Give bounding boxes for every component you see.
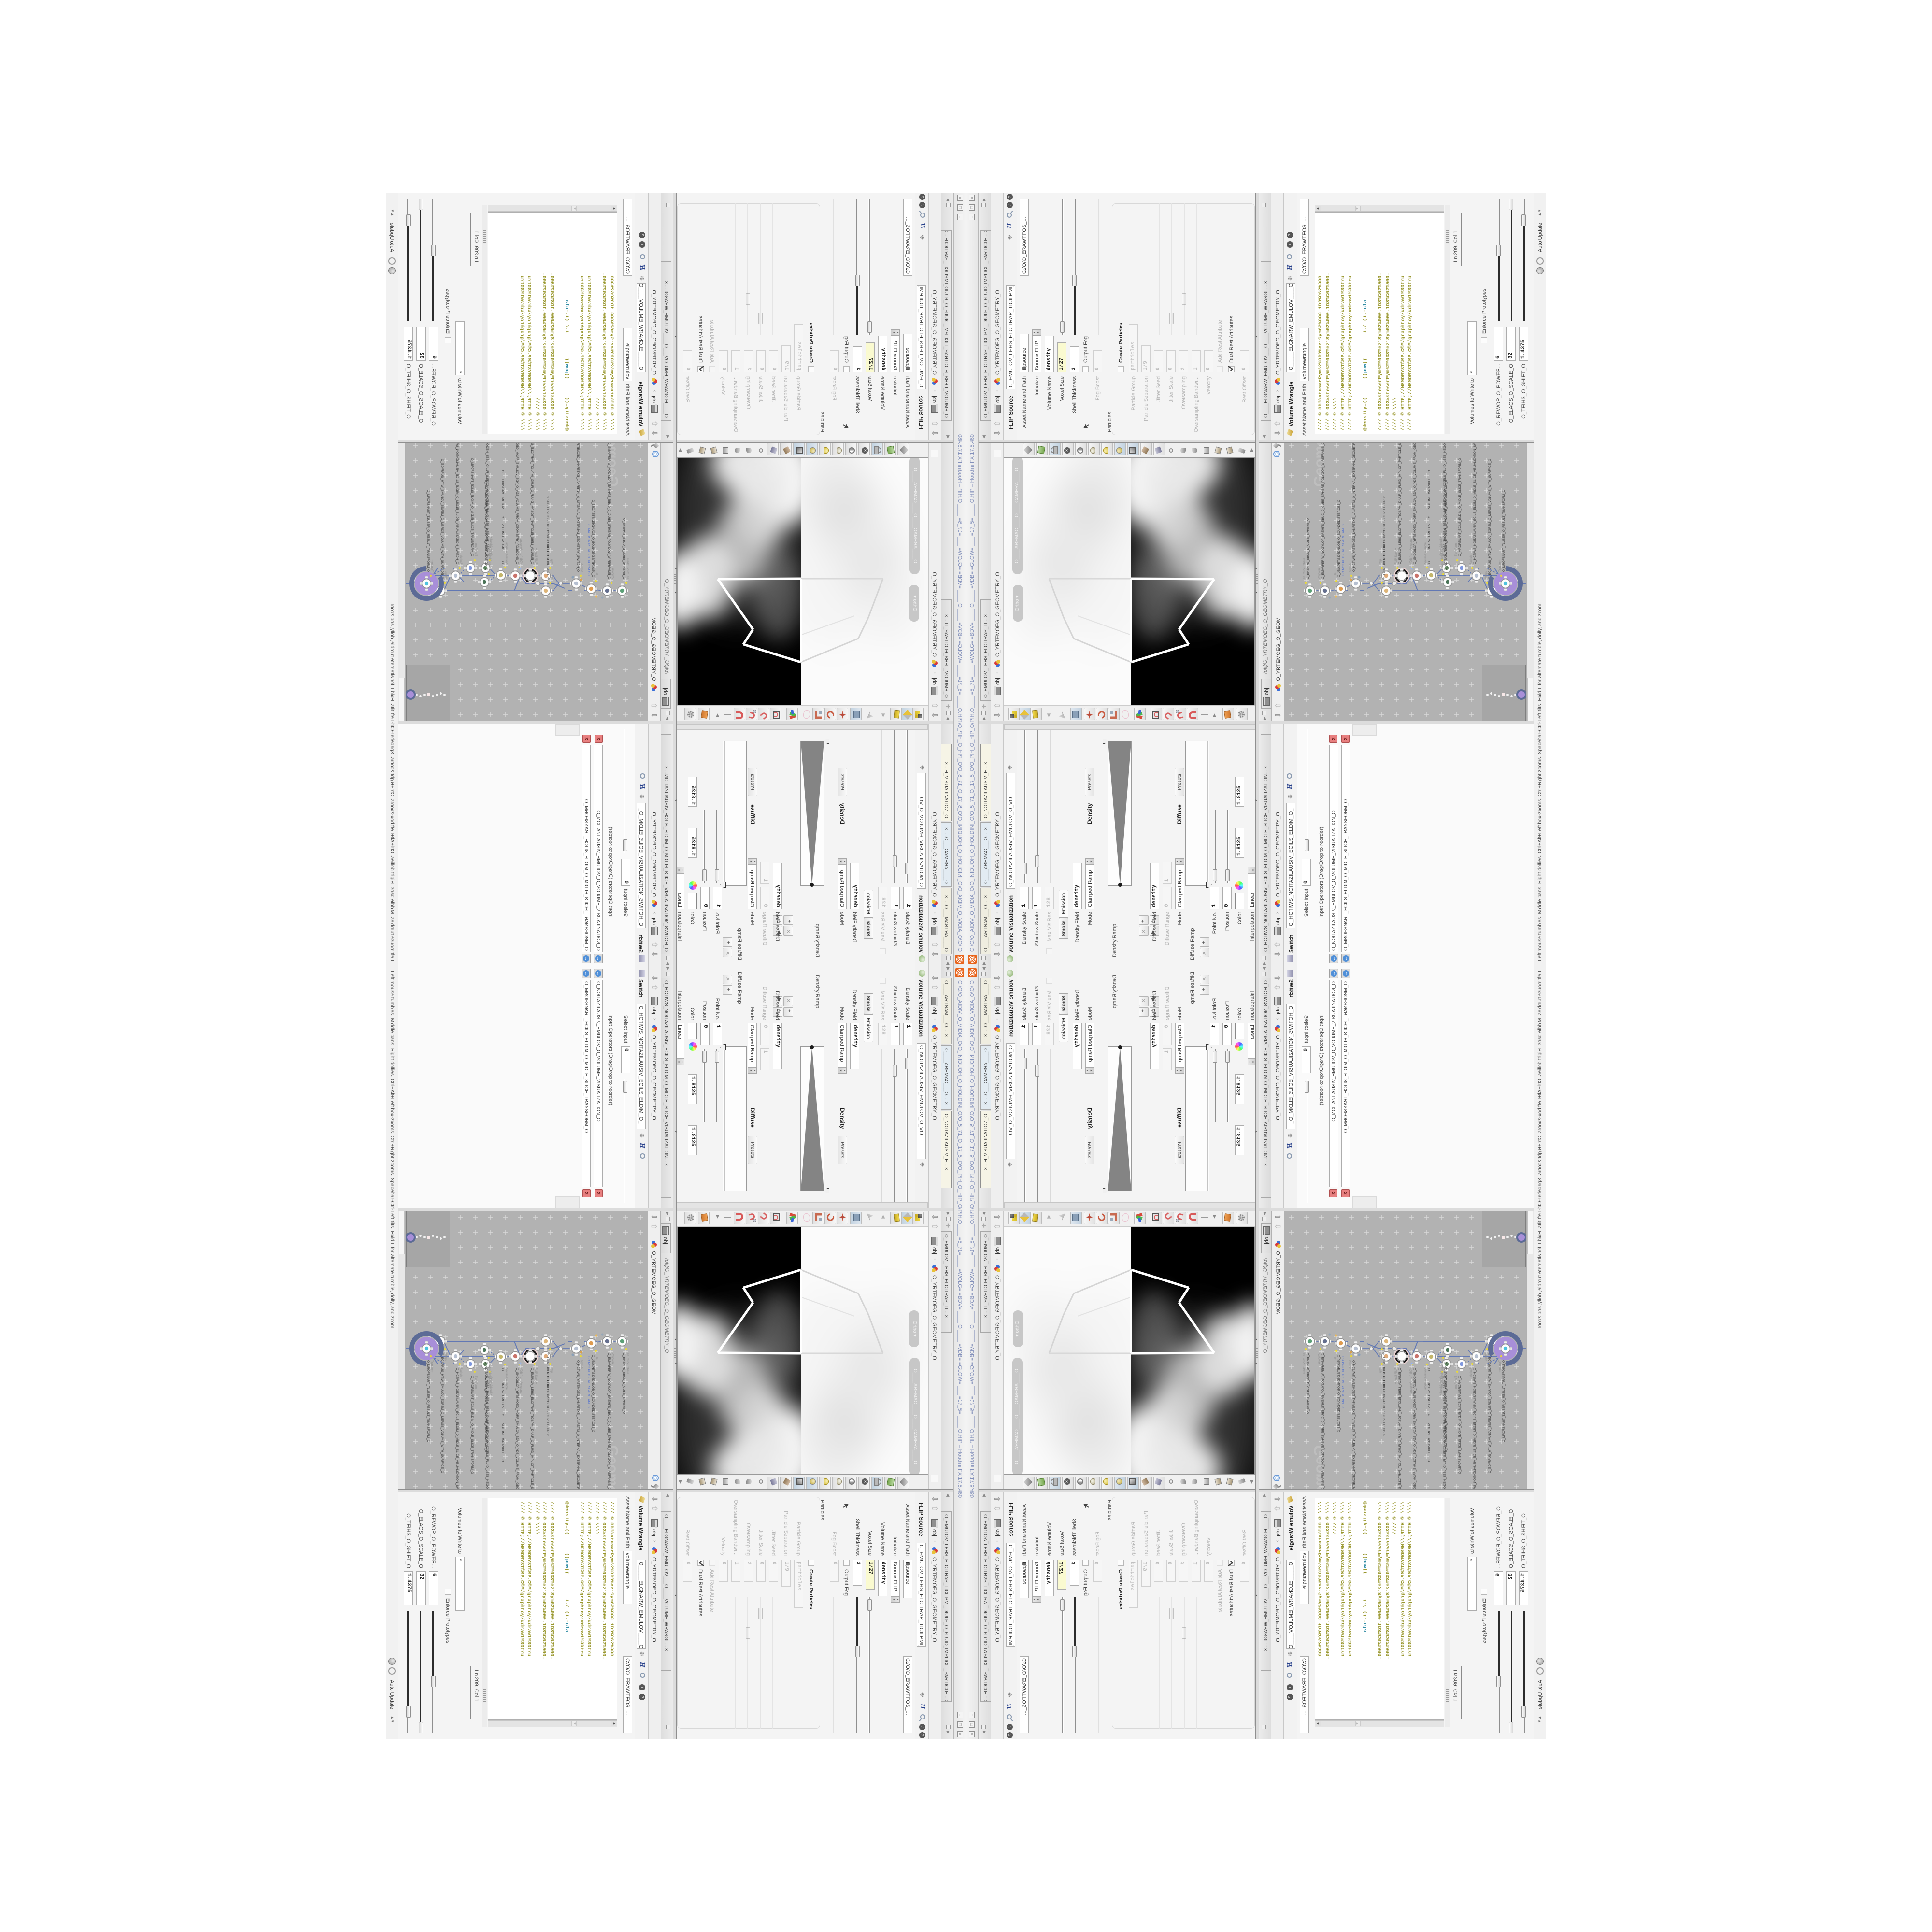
svg-text:VolumeVisualization: VolumeVisualization bbox=[488, 1362, 491, 1388]
svg-text:O_EREHPS_EBUC_D_CUBE_SPHERE_O: O_EREHPS_EBUC_D_CUBE_SPHERE_O bbox=[622, 518, 625, 579]
svg-text:File: File bbox=[595, 1355, 598, 1360]
svg-text:Clip: Clip bbox=[1379, 574, 1382, 579]
svg-text:O_EMULOV_LEHS_ELCITRAP_TICILPM: O_EMULOV_LEHS_ELCITRAP_TICILPMI_DIULF_O_… bbox=[1398, 442, 1402, 564]
svg-text:Transform: Transform bbox=[430, 1360, 433, 1373]
svg-text:Clip: Clip bbox=[1379, 1368, 1382, 1373]
svg-text:VolumeVisualization: VolumeVisualization bbox=[1441, 544, 1444, 570]
svg-text:O____ELGNARW_EMULOV___O____VOL: O____ELGNARW_EMULOV___O____VOLUME_WRANGL… bbox=[1428, 1368, 1431, 1462]
svg-text:FLIP Source: FLIP Source bbox=[534, 548, 537, 564]
svg-text:O_SNOGILOP_YRTEMOEG_MORF_EMULO: O_SNOGILOP_YRTEMOEG_MORF_EMULOV_BDV_O_VD… bbox=[515, 442, 519, 564]
svg-text:O_JBO.PETS.DEDNUOB_O_BOUNDED.S: O_JBO.PETS.DEDNUOB_O_BOUNDED.STEP.OBJ_O bbox=[1337, 1355, 1341, 1432]
svg-text:Clip: Clip bbox=[550, 1353, 553, 1358]
svg-text:O_ECAF_PILC_O_CLIP_FACE_O: O_ECAF_PILC_O_CLIP_FACE_O bbox=[546, 1353, 549, 1401]
svg-text:Clip: Clip bbox=[550, 559, 553, 564]
svg-text:Clip: Clip bbox=[1379, 1353, 1382, 1358]
svg-text:an_CubeSphere: an_CubeSphere bbox=[626, 558, 629, 579]
svg-text:an_CubeSphere: an_CubeSphere bbox=[1303, 558, 1306, 579]
svg-text:Clip: Clip bbox=[550, 1368, 553, 1373]
svg-text:O_MROFSNART_TLUSER_O_RESULT_TR: O_MROFSNART_TLUSER_O_RESULT_TRANSFORM_O bbox=[1502, 1360, 1506, 1442]
svg-text:Switch: Switch bbox=[1349, 563, 1352, 572]
svg-text:Switch: Switch bbox=[580, 563, 583, 572]
svg-text:Transform: Transform bbox=[1499, 1360, 1502, 1373]
svg-text:O_NOITAZILAUSIV_EMULOV_O_VOLUM: O_NOITAZILAUSIV_EMULOV_O_VOLUME_VISUALIZ… bbox=[1444, 480, 1448, 570]
svg-text:VDB from Polygons: VDB from Polygons bbox=[1410, 1368, 1413, 1393]
svg-text:FLIP Source: FLIP Source bbox=[1395, 1368, 1398, 1384]
svg-text:O_HCTIWS_YRTEMOEG_LANRETXE_LAN: O_HCTIWS_YRTEMOEG_LANRETXE_LANRETNI_O_IN… bbox=[576, 442, 580, 572]
svg-text:Switch: Switch bbox=[580, 1360, 583, 1369]
svg-text:VolumeVisualization: VolumeVisualization bbox=[488, 544, 491, 570]
svg-text:O_JBO.PETS.DEDNUOB_O_BOUNDED.S: O_JBO.PETS.DEDNUOB_O_BOUNDED.STEP.OBJ_O bbox=[1337, 500, 1341, 577]
svg-text:O_JBO.PETS.DEDNUOB_O_BOUNDED.S: O_JBO.PETS.DEDNUOB_O_BOUNDED.STEP.OBJ_O bbox=[591, 500, 595, 577]
svg-text:O_HCTIWS_NOITAZILAUSIV_ECILS_E: O_HCTIWS_NOITAZILAUSIV_ECILS_ELDIM_O_MID… bbox=[1473, 1368, 1477, 1490]
svg-text:O_ECAFRUS_HTIW_EMULOV_EGREM_O_: O_ECAFRUS_HTIW_EMULOV_EGREM_O_MERGE_VOLU… bbox=[440, 1353, 444, 1473]
svg-text:FLIP Source: FLIP Source bbox=[1395, 548, 1398, 564]
svg-text:Transform: Transform bbox=[1455, 543, 1458, 556]
svg-text:Switch: Switch bbox=[459, 1368, 462, 1377]
svg-text:O_HCTIWS_YRTEMOEG_LANRETXE_LAN: O_HCTIWS_YRTEMOEG_LANRETXE_LANRETNI_O_IN… bbox=[1352, 442, 1356, 572]
svg-text:O_EMARFERIW_NOGYLOP_EREHPS_EBU: O_EMARFERIW_NOGYLOP_EREHPS_EBUC_D_CUBE_S… bbox=[1321, 442, 1325, 579]
svg-text:O_EMULOV_LEHS_ELCITRAP_TICILPM: O_EMULOV_LEHS_ELCITRAP_TICILPMI_DIULF_O_… bbox=[530, 442, 534, 564]
svg-text:O_SNOGILOP_YRTEMOEG_MORF_EMULO: O_SNOGILOP_YRTEMOEG_MORF_EMULOV_BDV_O_VD… bbox=[1413, 1368, 1417, 1490]
svg-text:O_EMULOV_LEHS_ELCITRAP_TICILPM: O_EMULOV_LEHS_ELCITRAP_TICILPMI_DIULF_O_… bbox=[530, 1368, 534, 1490]
svg-text:O_ECAFRUS_HTIW_EMULOV_EGREM_O_: O_ECAFRUS_HTIW_EMULOV_EGREM_O_MERGE_VOLU… bbox=[1488, 1353, 1492, 1473]
svg-text:Volume Wrangle: Volume Wrangle bbox=[1424, 1368, 1427, 1390]
svg-text:Volume Wrangle: Volume Wrangle bbox=[505, 542, 508, 564]
svg-text:JBO.NO3.PETS.TRF_SLAIRETAM_O: JBO.NO3.PETS.TRF_SLAIRETAM_O bbox=[1342, 524, 1345, 577]
svg-text:O_EMULOV_LEHS_ELCITRAP_TICILPM: O_EMULOV_LEHS_ELCITRAP_TICILPMI_DIULF_O_… bbox=[1398, 1368, 1402, 1490]
svg-text:PolyWire: PolyWire bbox=[1318, 567, 1321, 579]
svg-text:Clip: Clip bbox=[550, 574, 553, 579]
svg-text:Merge: Merge bbox=[444, 1353, 447, 1362]
svg-text:O_EMARFERIW_NOGYLOP_EREHPS_EBU: O_EMARFERIW_NOGYLOP_EREHPS_EBUC_D_CUBE_S… bbox=[607, 1353, 611, 1490]
svg-text:O_NOITAZILAUSIV_EMULOV_O_VOLUM: O_NOITAZILAUSIV_EMULOV_O_VOLUME_VISUALIZ… bbox=[1444, 1362, 1448, 1452]
svg-text:JBO.NO3.PETS.TRF_SLAIRETAM_O: JBO.NO3.PETS.TRF_SLAIRETAM_O bbox=[1342, 1355, 1345, 1408]
svg-text:VDB from Polygons: VDB from Polygons bbox=[1410, 539, 1413, 564]
svg-text:Transform: Transform bbox=[474, 1376, 477, 1389]
svg-text:FLIP Source: FLIP Source bbox=[534, 1368, 537, 1384]
svg-text:O_MROFSNART_ECILS_ELDIM_O_MIDL: O_MROFSNART_ECILS_ELDIM_O_MIDLE_SLICE_TR… bbox=[470, 1376, 474, 1474]
svg-text:O_HCTIWS_NOITAZILAUSIV_ECILS_E: O_HCTIWS_NOITAZILAUSIV_ECILS_ELDIM_O_MID… bbox=[455, 442, 459, 564]
svg-text:O____ELGNARW_EMULOV___O____VOL: O____ELGNARW_EMULOV___O____VOLUME_WRANGL… bbox=[1428, 470, 1431, 564]
svg-text:Switch: Switch bbox=[1470, 555, 1473, 564]
svg-text:O_EMARFERIW_NOGYLOP_EREHPS_EBU: O_EMARFERIW_NOGYLOP_EREHPS_EBUC_D_CUBE_S… bbox=[1321, 1353, 1325, 1490]
svg-text:JBO.NO3.PETS.TRF_SLAIRETAM_O: JBO.NO3.PETS.TRF_SLAIRETAM_O bbox=[587, 524, 590, 577]
svg-text:Transform: Transform bbox=[474, 543, 477, 556]
svg-text:O_MROFSNART_TLUSER_O_RESULT_TR: O_MROFSNART_TLUSER_O_RESULT_TRANSFORM_O bbox=[426, 490, 430, 572]
svg-text:File: File bbox=[1334, 572, 1337, 577]
svg-text:PolyWire: PolyWire bbox=[1318, 1353, 1321, 1365]
svg-text:O_ECAFRUS_HTIW_EMULOV_EGREM_O_: O_ECAFRUS_HTIW_EMULOV_EGREM_O_MERGE_VOLU… bbox=[1488, 459, 1492, 579]
svg-text:Transform: Transform bbox=[1499, 559, 1502, 572]
svg-text:O_MROFSNART_ECILS_ELDIM_O_MIDL: O_MROFSNART_ECILS_ELDIM_O_MIDLE_SLICE_TR… bbox=[1458, 458, 1462, 556]
svg-text:Switch: Switch bbox=[459, 555, 462, 564]
svg-text:O_ECAFRUS_HTIW_EMULOV_EGREM_O_: O_ECAFRUS_HTIW_EMULOV_EGREM_O_MERGE_VOLU… bbox=[440, 459, 444, 579]
svg-text:VDB from Polygons: VDB from Polygons bbox=[519, 539, 522, 564]
svg-text:File: File bbox=[595, 572, 598, 577]
svg-text:Volume Wrangle: Volume Wrangle bbox=[505, 1368, 508, 1390]
svg-text:Merge: Merge bbox=[1485, 1353, 1488, 1362]
svg-text:O_HCTIWS_YRTEMOEG_LANRETXE_LAN: O_HCTIWS_YRTEMOEG_LANRETXE_LANRETNI_O_IN… bbox=[1352, 1360, 1356, 1490]
svg-text:O_EREHPS_EBUC_D_CUBE_SPHERE_O: O_EREHPS_EBUC_D_CUBE_SPHERE_O bbox=[1307, 518, 1310, 579]
svg-text:O_EREHPS_EBUC_D_CUBE_SPHERE_O: O_EREHPS_EBUC_D_CUBE_SPHERE_O bbox=[1307, 1353, 1310, 1414]
svg-text:O_MROFSNART_TLUSER_O_RESULT_TR: O_MROFSNART_TLUSER_O_RESULT_TRANSFORM_O bbox=[1502, 490, 1506, 572]
svg-text:O____ELGNARW_EMULOV___O____VOL: O____ELGNARW_EMULOV___O____VOLUME_WRANGL… bbox=[501, 1368, 504, 1462]
svg-text:O_SNOGILOP_YRTEMOEG_MORF_EMULO: O_SNOGILOP_YRTEMOEG_MORF_EMULOV_BDV_O_VD… bbox=[1413, 442, 1417, 564]
svg-text:Switch: Switch bbox=[1349, 1360, 1352, 1369]
svg-text:Transform: Transform bbox=[430, 559, 433, 572]
svg-text:O_ECAF_PILC_O_CLIP_FACE_O: O_ECAF_PILC_O_CLIP_FACE_O bbox=[1383, 531, 1386, 579]
svg-text:an_CubeSphere: an_CubeSphere bbox=[626, 1353, 629, 1374]
svg-text:VolumeVisualization: VolumeVisualization bbox=[1441, 1362, 1444, 1388]
svg-text:Clip: Clip bbox=[1379, 559, 1382, 564]
svg-text:O_MROFSNART_ECILS_ELDIM_O_MIDL: O_MROFSNART_ECILS_ELDIM_O_MIDLE_SLICE_TR… bbox=[1458, 1376, 1462, 1474]
svg-text:Merge: Merge bbox=[1485, 570, 1488, 579]
svg-text:O_NOITAZILAUSIV_EMULOV_O_VOLUM: O_NOITAZILAUSIV_EMULOV_O_VOLUME_VISUALIZ… bbox=[484, 480, 488, 570]
svg-text:O_ECAF_PILC_O_CLIP_FACE_O: O_ECAF_PILC_O_CLIP_FACE_O bbox=[546, 531, 549, 579]
svg-text:O_EREHPS_EBUC_D_CUBE_SPHERE_O: O_EREHPS_EBUC_D_CUBE_SPHERE_O bbox=[622, 1353, 625, 1414]
svg-text:Switch: Switch bbox=[1470, 1368, 1473, 1377]
svg-text:O_ECAF_PILC_O_CLIP_FACE_O: O_ECAF_PILC_O_CLIP_FACE_O bbox=[1383, 1353, 1386, 1401]
svg-text:VDB from Polygons: VDB from Polygons bbox=[519, 1368, 522, 1393]
svg-text:JBO.NO3.PETS.TRF_SLAIRETAM_O: JBO.NO3.PETS.TRF_SLAIRETAM_O bbox=[587, 1355, 590, 1408]
svg-text:O_JBO.PETS.DEDNUOB_O_BOUNDED.S: O_JBO.PETS.DEDNUOB_O_BOUNDED.STEP.OBJ_O bbox=[591, 1355, 595, 1432]
svg-text:O_HCTIWS_NOITAZILAUSIV_ECILS_E: O_HCTIWS_NOITAZILAUSIV_ECILS_ELDIM_O_MID… bbox=[455, 1368, 459, 1490]
svg-text:Transform: Transform bbox=[1455, 1376, 1458, 1389]
svg-text:O_EMARFERIW_NOGYLOP_EREHPS_EBU: O_EMARFERIW_NOGYLOP_EREHPS_EBUC_D_CUBE_S… bbox=[607, 442, 611, 579]
svg-text:O_SNOGILOP_YRTEMOEG_MORF_EMULO: O_SNOGILOP_YRTEMOEG_MORF_EMULOV_BDV_O_VD… bbox=[515, 1368, 519, 1490]
svg-text:PolyWire: PolyWire bbox=[611, 1353, 614, 1365]
svg-text:PolyWire: PolyWire bbox=[611, 567, 614, 579]
svg-text:O_HCTIWS_NOITAZILAUSIV_ECILS_E: O_HCTIWS_NOITAZILAUSIV_ECILS_ELDIM_O_MID… bbox=[1473, 442, 1477, 564]
svg-text:File: File bbox=[1334, 1355, 1337, 1360]
svg-text:O_HCTIWS_YRTEMOEG_LANRETXE_LAN: O_HCTIWS_YRTEMOEG_LANRETXE_LANRETNI_O_IN… bbox=[576, 1360, 580, 1490]
svg-text:Volume Wrangle: Volume Wrangle bbox=[1424, 542, 1427, 564]
svg-text:O_MROFSNART_ECILS_ELDIM_O_MIDL: O_MROFSNART_ECILS_ELDIM_O_MIDLE_SLICE_TR… bbox=[470, 458, 474, 556]
svg-text:O_MROFSNART_TLUSER_O_RESULT_TR: O_MROFSNART_TLUSER_O_RESULT_TRANSFORM_O bbox=[426, 1360, 430, 1442]
svg-text:Merge: Merge bbox=[444, 570, 447, 579]
svg-text:O____ELGNARW_EMULOV___O____VOL: O____ELGNARW_EMULOV___O____VOLUME_WRANGL… bbox=[501, 470, 504, 564]
svg-text:an_CubeSphere: an_CubeSphere bbox=[1303, 1353, 1306, 1374]
svg-text:O_NOITAZILAUSIV_EMULOV_O_VOLUM: O_NOITAZILAUSIV_EMULOV_O_VOLUME_VISUALIZ… bbox=[484, 1362, 488, 1452]
